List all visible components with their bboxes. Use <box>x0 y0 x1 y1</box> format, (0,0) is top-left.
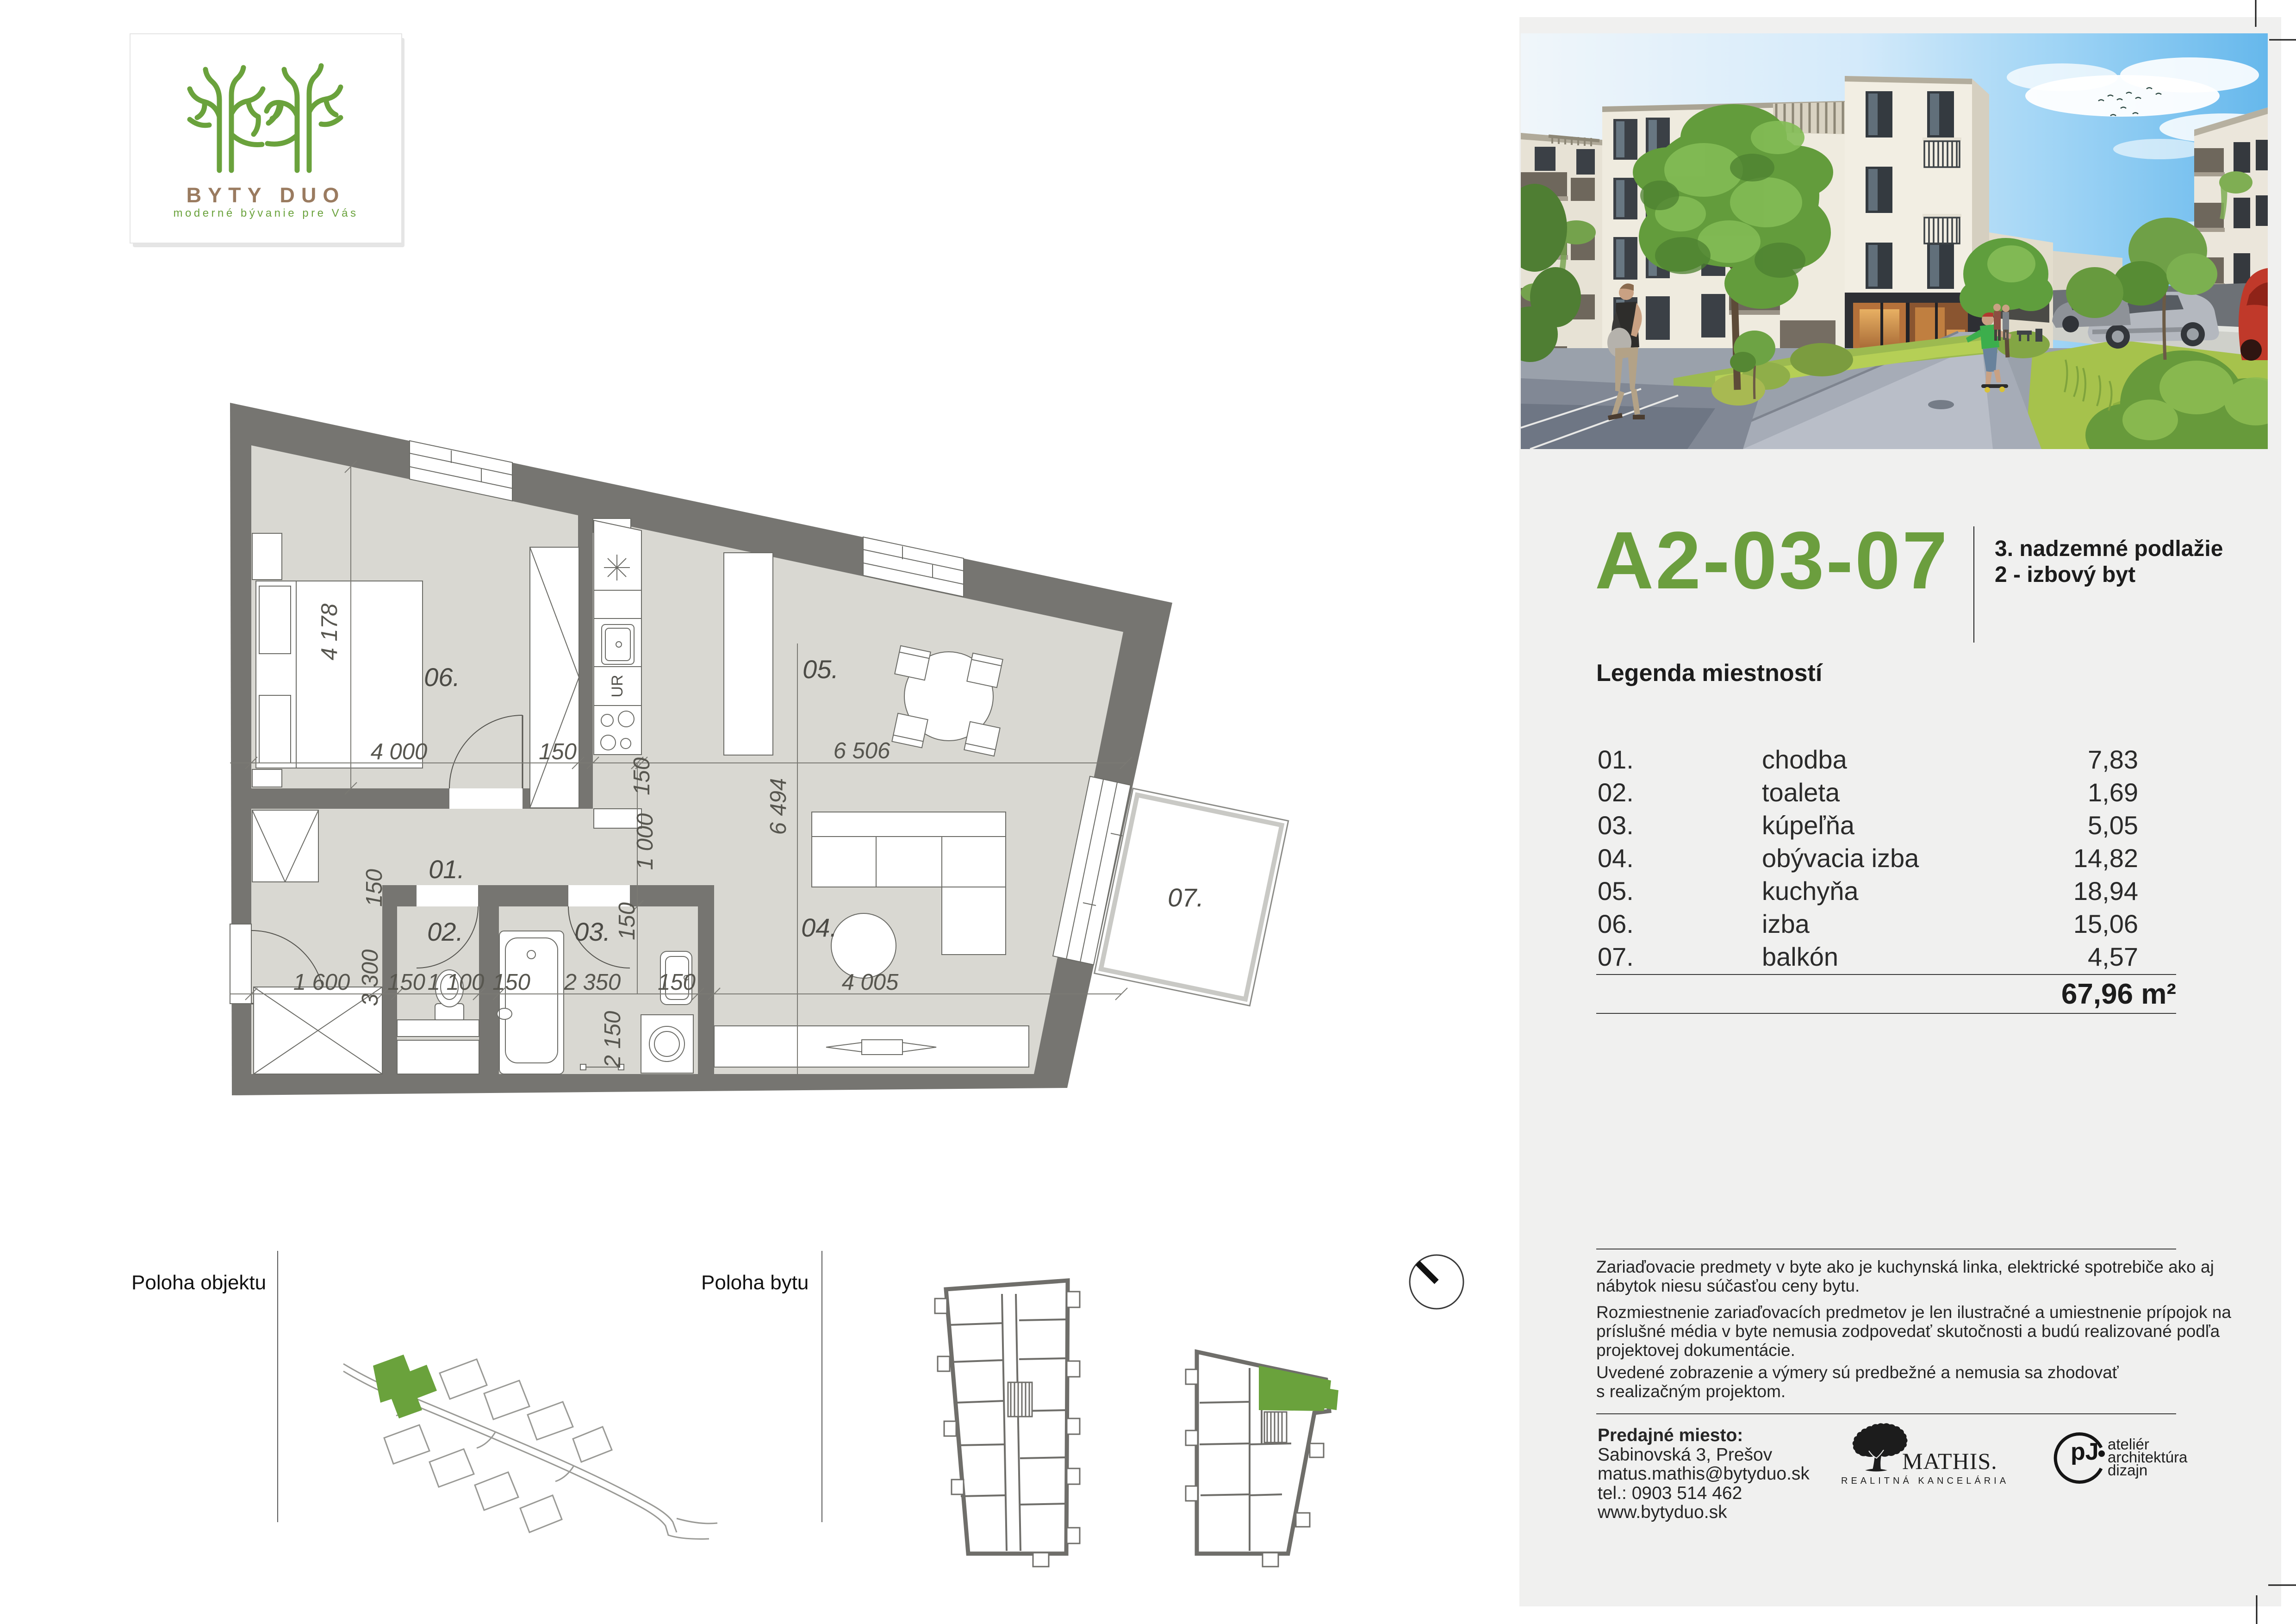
svg-text:1 600: 1 600 <box>293 970 350 995</box>
svg-text:6 506: 6 506 <box>834 738 890 763</box>
svg-text:UR: UR <box>609 675 626 697</box>
svg-text:150: 150 <box>615 902 640 940</box>
svg-text:4 178: 4 178 <box>317 604 342 661</box>
svg-text:6 494: 6 494 <box>766 778 791 835</box>
svg-text:150: 150 <box>492 970 530 995</box>
svg-text:150: 150 <box>387 970 425 995</box>
svg-text:150: 150 <box>629 757 654 795</box>
svg-text:4 000: 4 000 <box>371 739 428 764</box>
svg-text:04.: 04. <box>801 913 837 942</box>
svg-text:03.: 03. <box>574 917 610 946</box>
svg-text:2 350: 2 350 <box>564 970 621 995</box>
svg-text:02.: 02. <box>427 917 463 946</box>
svg-text:06.: 06. <box>424 662 460 692</box>
svg-text:1 100: 1 100 <box>428 970 485 995</box>
svg-text:05.: 05. <box>803 655 839 684</box>
svg-text:150: 150 <box>539 739 577 764</box>
svg-text:4 005: 4 005 <box>842 970 899 995</box>
svg-text:3 300: 3 300 <box>358 949 383 1006</box>
svg-text:150: 150 <box>658 970 696 995</box>
svg-text:07.: 07. <box>1168 883 1204 912</box>
svg-text:2 150: 2 150 <box>600 1011 625 1068</box>
svg-text:150: 150 <box>362 869 387 907</box>
svg-text:01.: 01. <box>429 855 465 884</box>
svg-text:1 000: 1 000 <box>633 813 658 870</box>
